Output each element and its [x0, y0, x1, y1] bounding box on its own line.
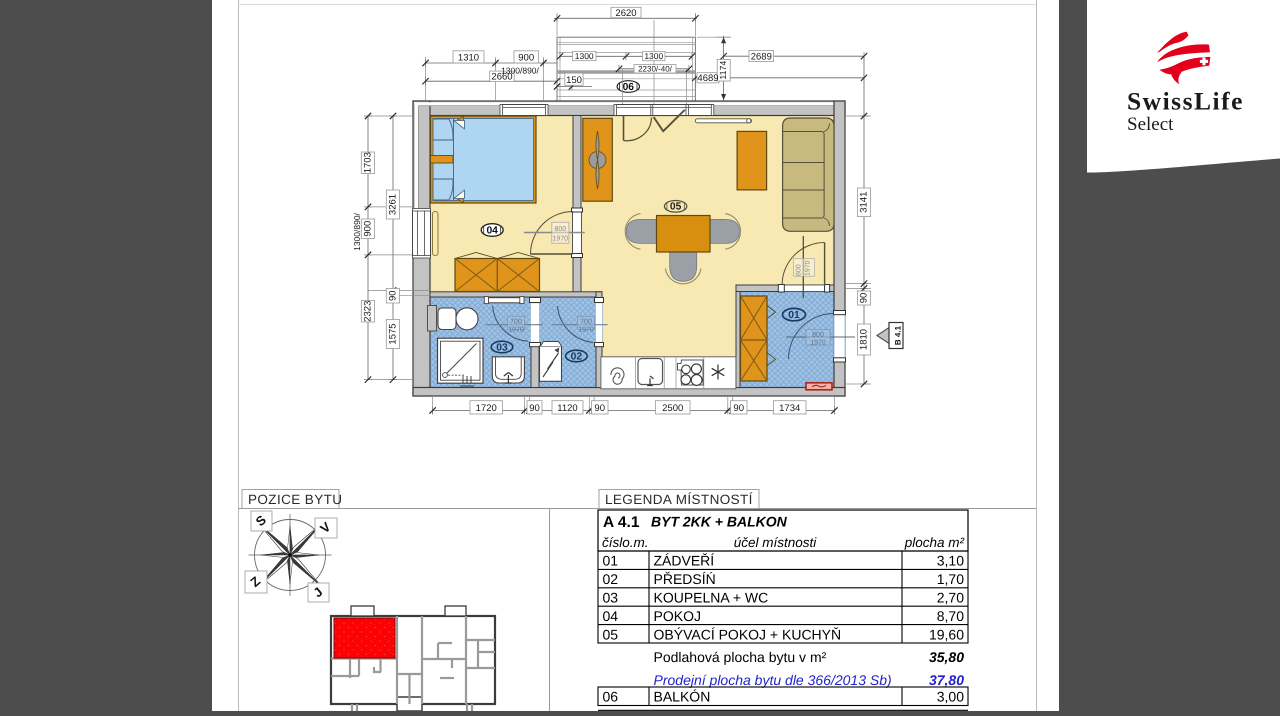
svg-text:SwissLife: SwissLife	[1127, 87, 1244, 116]
svg-text:Select: Select	[1127, 114, 1174, 135]
